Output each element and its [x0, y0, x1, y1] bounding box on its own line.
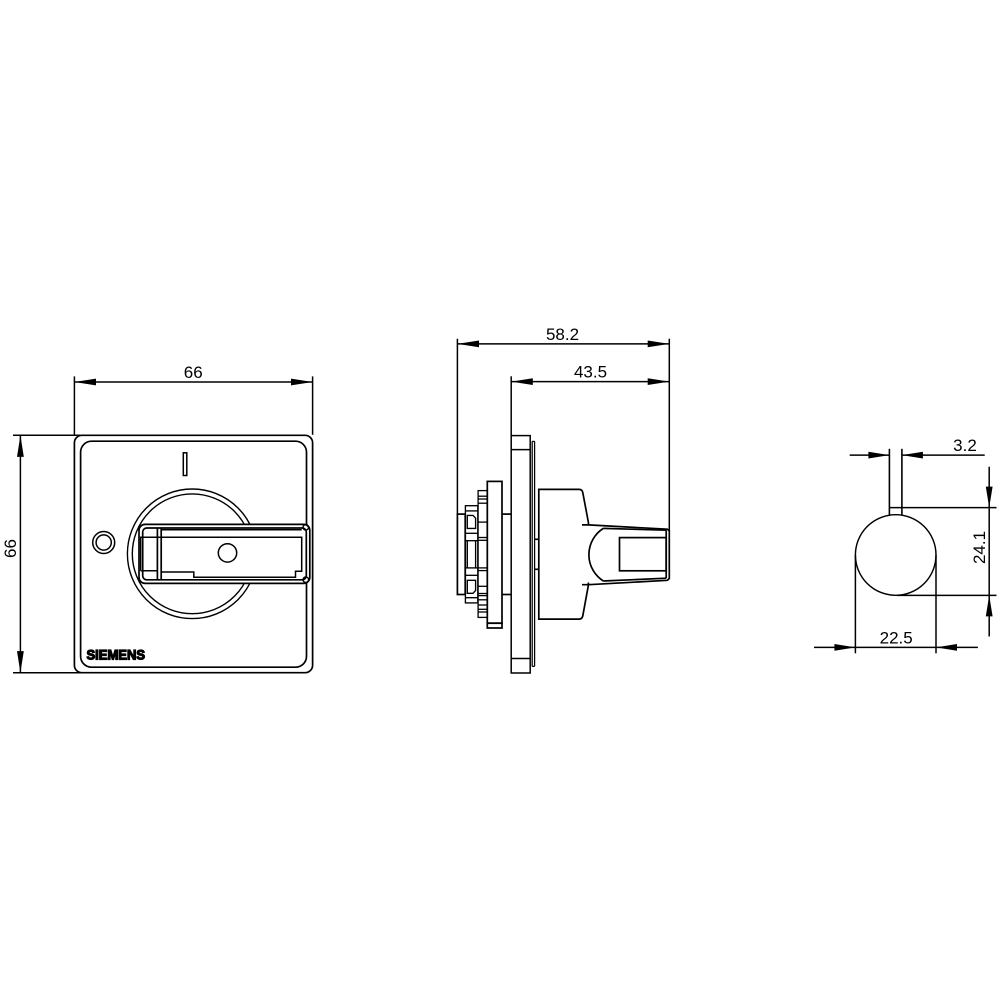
svg-text:SIEMENS: SIEMENS	[87, 648, 146, 663]
svg-text:66: 66	[184, 363, 203, 382]
svg-text:3.2: 3.2	[953, 436, 977, 455]
svg-text:24.1: 24.1	[970, 531, 989, 564]
svg-text:22.5: 22.5	[880, 628, 913, 647]
svg-text:58.2: 58.2	[546, 325, 579, 344]
svg-text:66: 66	[1, 539, 20, 558]
svg-text:43.5: 43.5	[574, 362, 607, 381]
